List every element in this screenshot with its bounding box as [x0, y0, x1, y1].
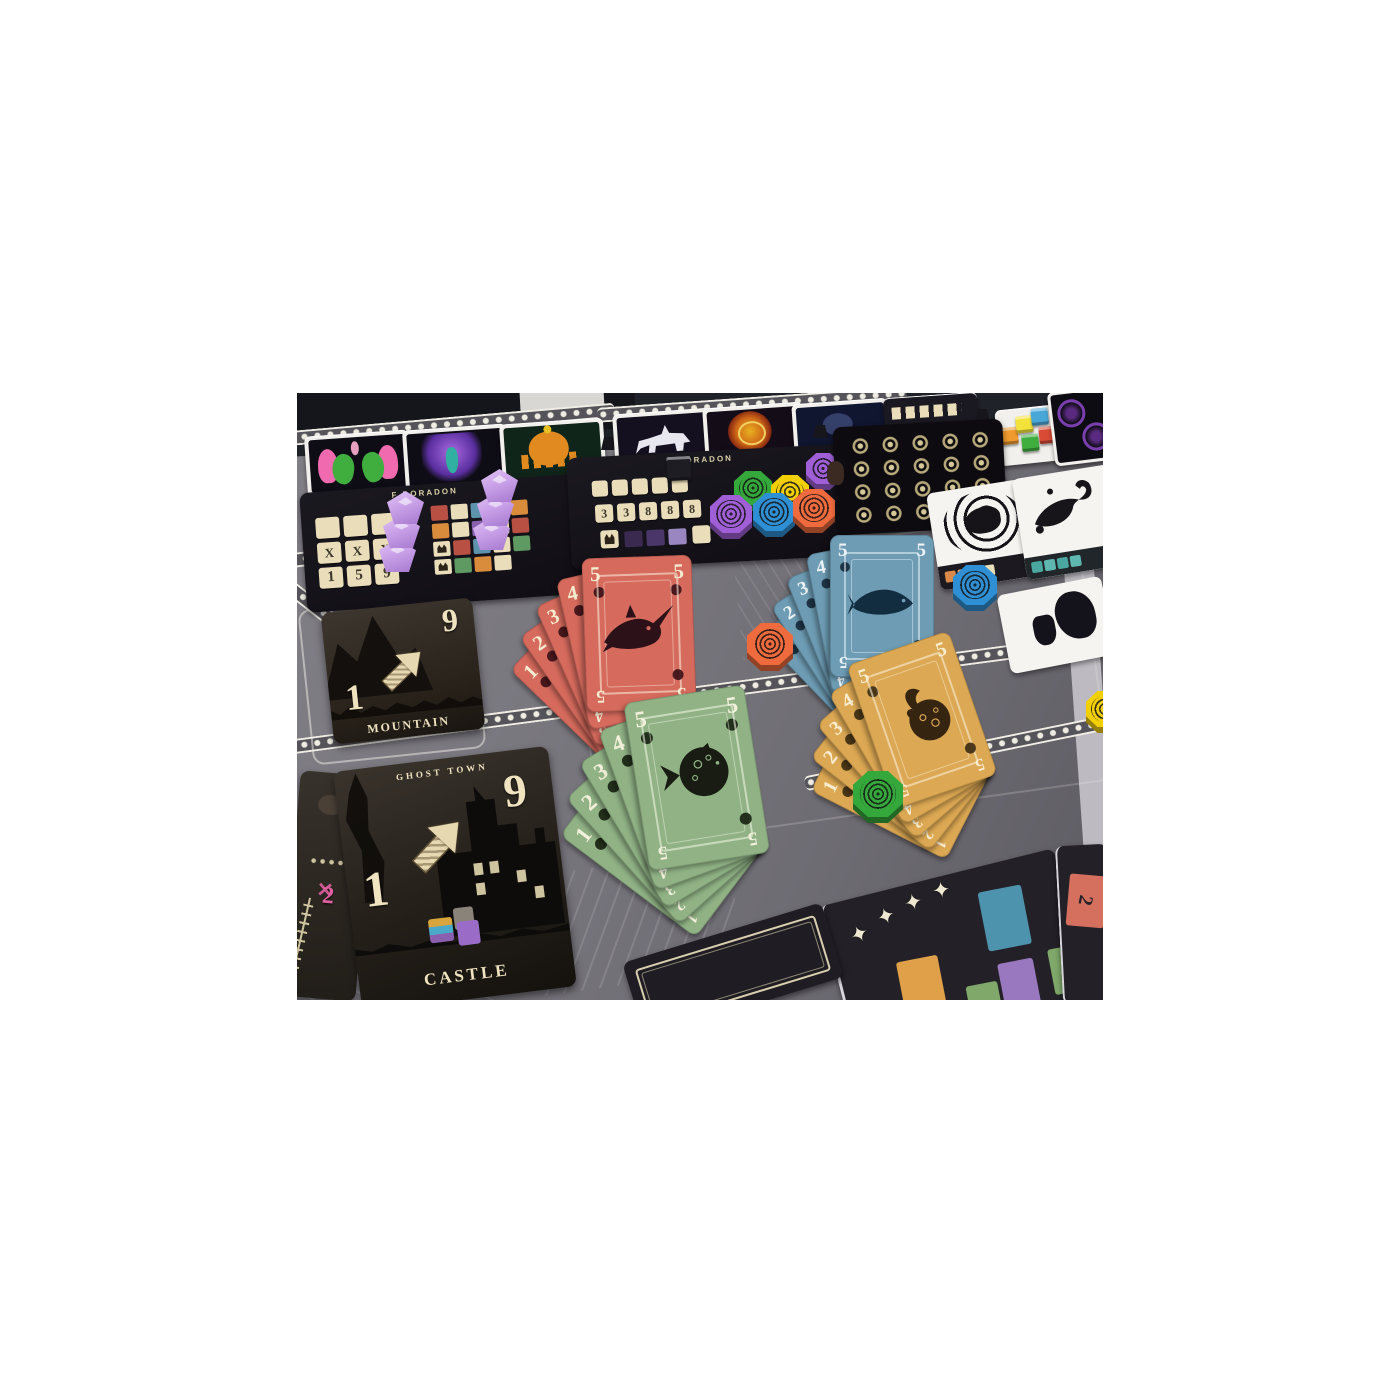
card-deck-purple-back[interactable] [1047, 393, 1103, 467]
castle-window [489, 861, 499, 874]
salmon-icon [846, 580, 918, 624]
mountain-card[interactable]: 9 1 MOUNTAIN [321, 597, 486, 744]
bear-meeple[interactable] [827, 461, 844, 485]
score-tile[interactable] [343, 515, 368, 538]
score-tile[interactable]: 5 [346, 564, 371, 587]
number-tile[interactable]: 8 [683, 499, 702, 518]
score-tile[interactable]: X [317, 541, 342, 564]
swordfish-icon [598, 599, 680, 660]
blank-tile[interactable] [631, 478, 648, 495]
yellow-fish-token[interactable] [1086, 691, 1103, 727]
number-tile[interactable]: 8 [639, 502, 658, 521]
cat-cell[interactable] [434, 559, 452, 575]
number-tile[interactable]: 8 [661, 501, 680, 520]
purple-square [456, 919, 481, 946]
star-icon: ✦ [931, 878, 952, 902]
page: ✕ ✕ [0, 0, 1400, 1400]
orange-fish-token[interactable] [747, 623, 793, 665]
green-fish-token[interactable] [853, 771, 903, 817]
blank-tile[interactable] [611, 479, 628, 496]
green-rect [965, 981, 1005, 1000]
scorpion-icon [1018, 469, 1103, 545]
scorpion-card[interactable] [1012, 464, 1103, 580]
salmon-rect: 2 [1066, 873, 1103, 928]
purple-rect [997, 957, 1041, 1000]
number-tile[interactable]: 3 [595, 504, 614, 523]
color-cell[interactable] [452, 521, 470, 537]
blank-tile[interactable] [591, 480, 608, 497]
castle-from: 1 [360, 858, 392, 919]
castle-window [473, 863, 483, 876]
star-icon: ✦ [847, 921, 873, 949]
mandala-back-icon [1050, 393, 1103, 463]
castle-window [516, 869, 526, 882]
orange-rect [896, 955, 948, 1000]
pufferfish-icon [650, 736, 743, 810]
castle-window [534, 885, 544, 898]
castle-window [476, 882, 486, 895]
teal-rect [977, 884, 1032, 951]
score-tile[interactable]: X [345, 539, 370, 562]
cat-icon [435, 543, 449, 555]
fish-jar-icon [1051, 588, 1099, 643]
castle-card[interactable]: GHOST TOWN 9 1 CASTLE [333, 746, 577, 1000]
edge-card-value: 2 [1073, 893, 1097, 907]
blank-tile[interactable] [651, 477, 668, 494]
x-icon: ✕ [316, 880, 334, 901]
cat-icon [436, 561, 450, 573]
multicolor-square [428, 917, 455, 944]
black-cube[interactable] [666, 456, 691, 481]
number-tile[interactable]: 3 [617, 503, 636, 522]
castle-to: 9 [501, 763, 530, 818]
star-icon: ✦ [874, 903, 899, 930]
star-icon: ✦ [902, 890, 925, 916]
color-cell[interactable] [450, 503, 468, 519]
frog-creature-icon [308, 434, 407, 493]
blue-fish-token[interactable] [953, 565, 997, 605]
color-cell[interactable] [511, 517, 529, 533]
score-tile[interactable] [315, 516, 340, 539]
color-cell[interactable] [453, 539, 471, 555]
green-cube[interactable] [1021, 433, 1040, 452]
edge-card[interactable]: 2 [1055, 844, 1103, 1000]
color-cell[interactable] [454, 557, 472, 573]
mountain-to: 9 [440, 601, 460, 639]
color-cell[interactable] [430, 505, 448, 521]
boardgame-photo: ✕ ✕ [297, 393, 1103, 1000]
blue-cube[interactable] [1030, 407, 1049, 426]
green-card-top[interactable]: 5 5 5 5 [623, 684, 770, 871]
color-cell[interactable] [432, 523, 450, 539]
cat-cell[interactable] [433, 541, 451, 557]
score-tile[interactable]: 1 [318, 566, 343, 589]
